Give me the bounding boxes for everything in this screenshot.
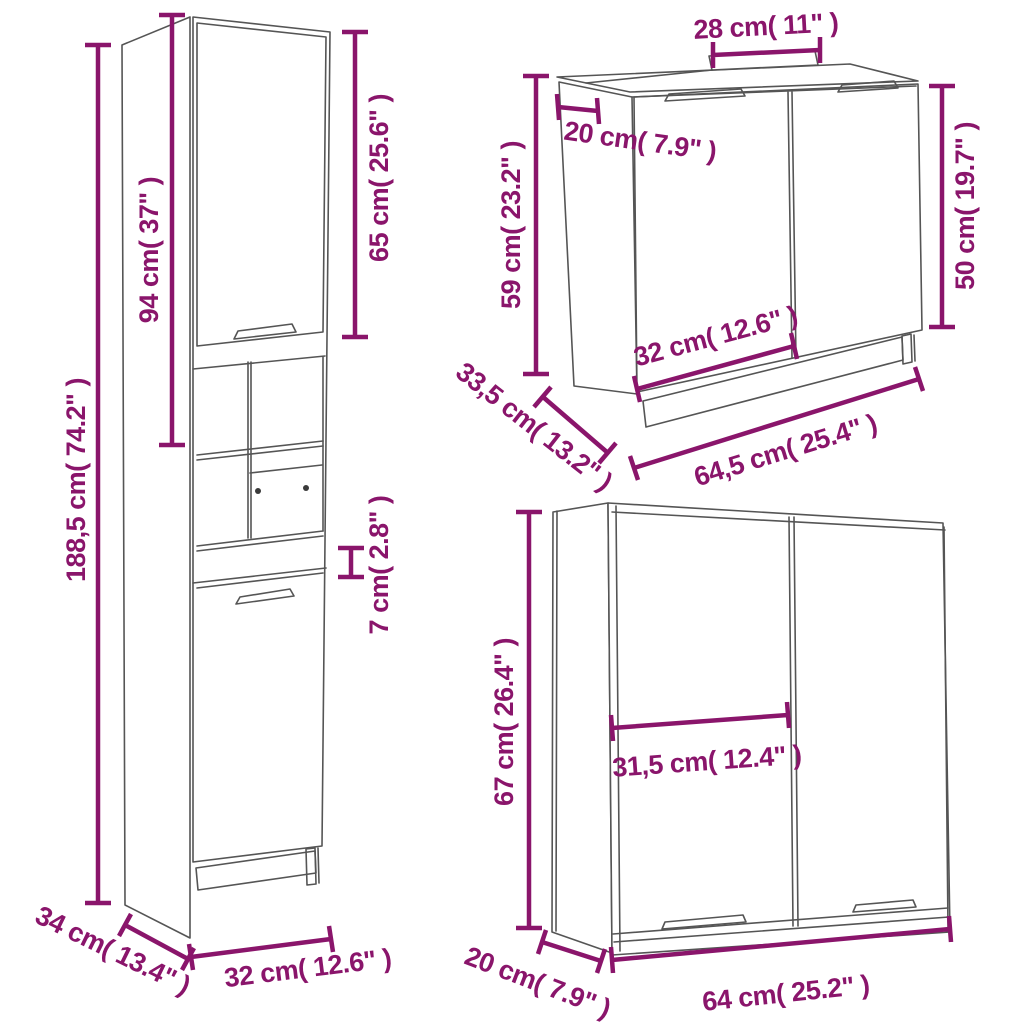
mirror-height-label: 67 cm( 26.4" )	[489, 638, 519, 806]
sink-height-label: 59 cm( 23.2" )	[496, 141, 526, 309]
tall-cabinet-side-panel	[122, 17, 190, 938]
sink-cutout-width-label: 28 cm( 11" )	[693, 7, 839, 45]
sink-width-dimension: 64,5 cm( 25.4" )	[630, 367, 923, 492]
mirror-cabinet-side-edge-line	[556, 511, 557, 931]
tall-gap-label: 7 cm( 2.8" )	[364, 496, 394, 635]
sink-door-height-dimension: 50 cm( 19.7" )	[929, 86, 980, 327]
tall-total-height-label: 188,5 cm( 74.2" )	[61, 378, 91, 582]
tall-upper-door-label: 65 cm( 25.6" )	[364, 94, 394, 262]
tall-cabinet-drawing	[122, 17, 330, 938]
sink-cabinet-leg	[902, 334, 915, 364]
tall-width-dimension: 32 cm( 12.6" )	[189, 926, 393, 993]
sink-door-height-label: 50 cm( 19.7" )	[950, 122, 980, 290]
tall-upper-door-dimension: 65 cm( 25.6" )	[342, 32, 394, 337]
product-dimensions-diagram: 188,5 cm( 74.2" ) 94 cm( 37" ) 65 cm( 25…	[0, 0, 1024, 1024]
mirror-cabinet-side-panel	[552, 503, 612, 953]
sink-cabinet-drawing	[557, 51, 922, 427]
mirror-width-label: 64 cm( 25.2" )	[701, 969, 871, 1016]
tall-gap-dimension: 7 cm( 2.8" )	[338, 496, 394, 635]
product-dimensions-page: 188,5 cm( 74.2" ) 94 cm( 37" ) 65 cm( 25…	[0, 0, 1024, 1024]
tall-cabinet-hole-right	[303, 485, 309, 491]
mirror-cabinet-front-face	[608, 503, 950, 955]
tall-cabinet-leg	[306, 848, 319, 885]
tall-total-height-dimension: 188,5 cm( 74.2" )	[61, 45, 111, 903]
tall-cabinet-hole-left	[255, 488, 261, 494]
tall-upper-section-label: 94 cm( 37" )	[134, 177, 164, 323]
tall-cabinet-front-face	[193, 17, 330, 862]
sink-height-dimension: 59 cm( 23.2" )	[496, 76, 549, 374]
mirror-height-dimension: 67 cm( 26.4" )	[489, 512, 542, 928]
